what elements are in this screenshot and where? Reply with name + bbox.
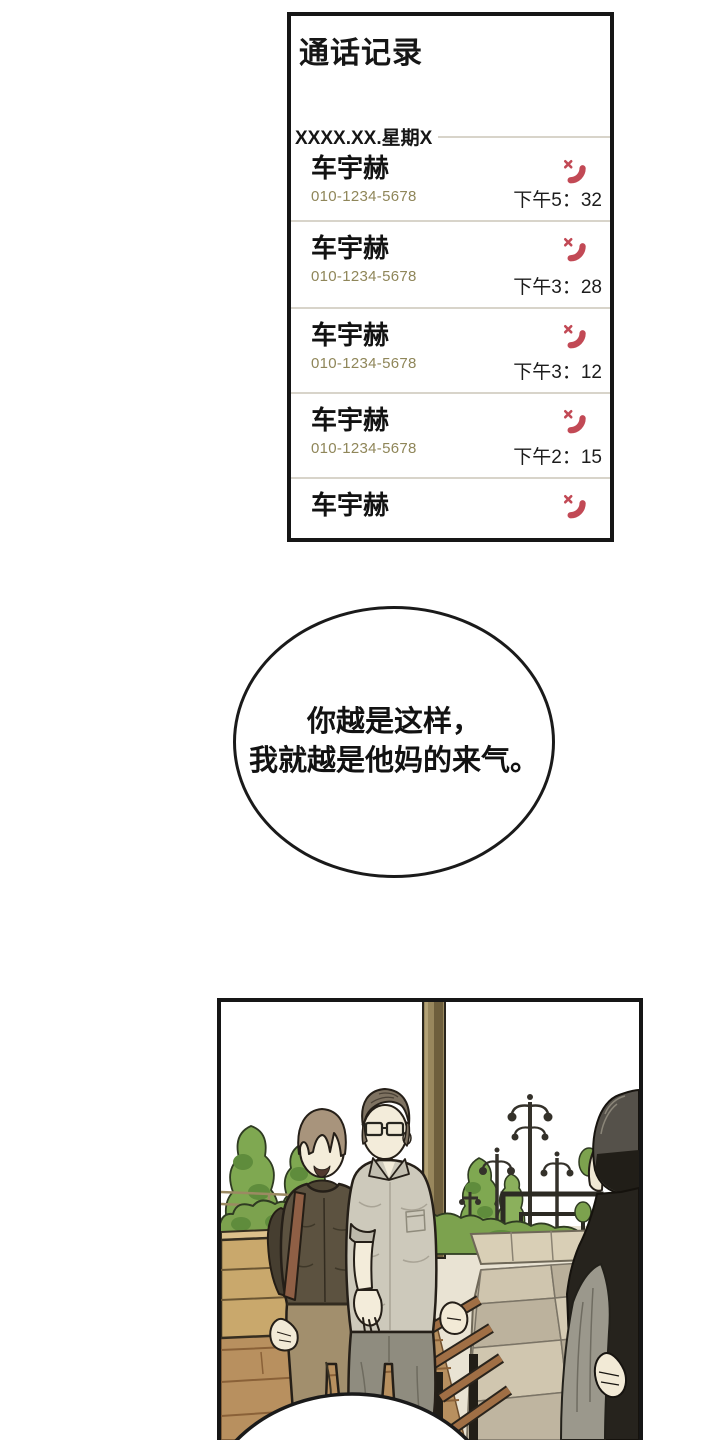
figure-right — [561, 1090, 639, 1440]
missed-call-icon — [562, 493, 588, 519]
call-log-list: 车宇赫 010-1234-5678 下午5：32 车宇赫 010-1234-56… — [291, 150, 610, 538]
contact-name: 车宇赫 — [311, 319, 602, 351]
call-log-title: 通话记录 — [299, 28, 423, 72]
date-divider-line — [438, 136, 610, 138]
call-log-entry[interactable]: 车宇赫 010-1234-5678 下午3：12 — [291, 309, 610, 394]
speech-line-1: 你越是这样， — [307, 703, 481, 742]
call-log-entry[interactable]: 车宇赫 010-1234-5678 下午3：28 — [291, 222, 610, 309]
call-time: 下午3：12 — [513, 357, 602, 384]
park-scene-illustration — [221, 1002, 639, 1440]
contact-name: 车宇赫 — [311, 152, 602, 184]
call-log-entry[interactable]: 车宇赫 010-1234-5678 下午2：15 — [291, 394, 610, 479]
call-time: 下午5：32 — [513, 185, 602, 212]
webtoon-page: { "colors": { "page_bg": "#ffffff", "pan… — [0, 0, 720, 1440]
call-log-date-header: XXXX.XX.星期X — [295, 123, 610, 150]
call-log-entry[interactable]: 车宇赫 — [291, 479, 610, 538]
speech-line-2: 我就越是他妈的来气。 — [249, 742, 539, 781]
call-log-entry[interactable]: 车宇赫 010-1234-5678 下午5：32 — [291, 150, 610, 222]
missed-call-icon — [562, 323, 588, 349]
contact-name: 车宇赫 — [311, 489, 602, 521]
contact-name: 车宇赫 — [311, 404, 602, 436]
date-header-text: XXXX.XX.星期X — [295, 123, 432, 150]
call-log-panel: 通话记录 XXXX.XX.星期X 车宇赫 010-1234-5678 下午5：3… — [287, 12, 614, 542]
missed-call-icon — [562, 236, 588, 262]
missed-call-icon — [562, 408, 588, 434]
call-time: 下午2：15 — [513, 442, 602, 469]
contact-name: 车宇赫 — [311, 232, 602, 264]
call-time: 下午3：28 — [513, 272, 602, 299]
speech-bubble: 你越是这样， 我就越是他妈的来气。 — [233, 606, 555, 878]
comic-panel — [217, 998, 643, 1440]
missed-call-icon — [562, 158, 588, 184]
